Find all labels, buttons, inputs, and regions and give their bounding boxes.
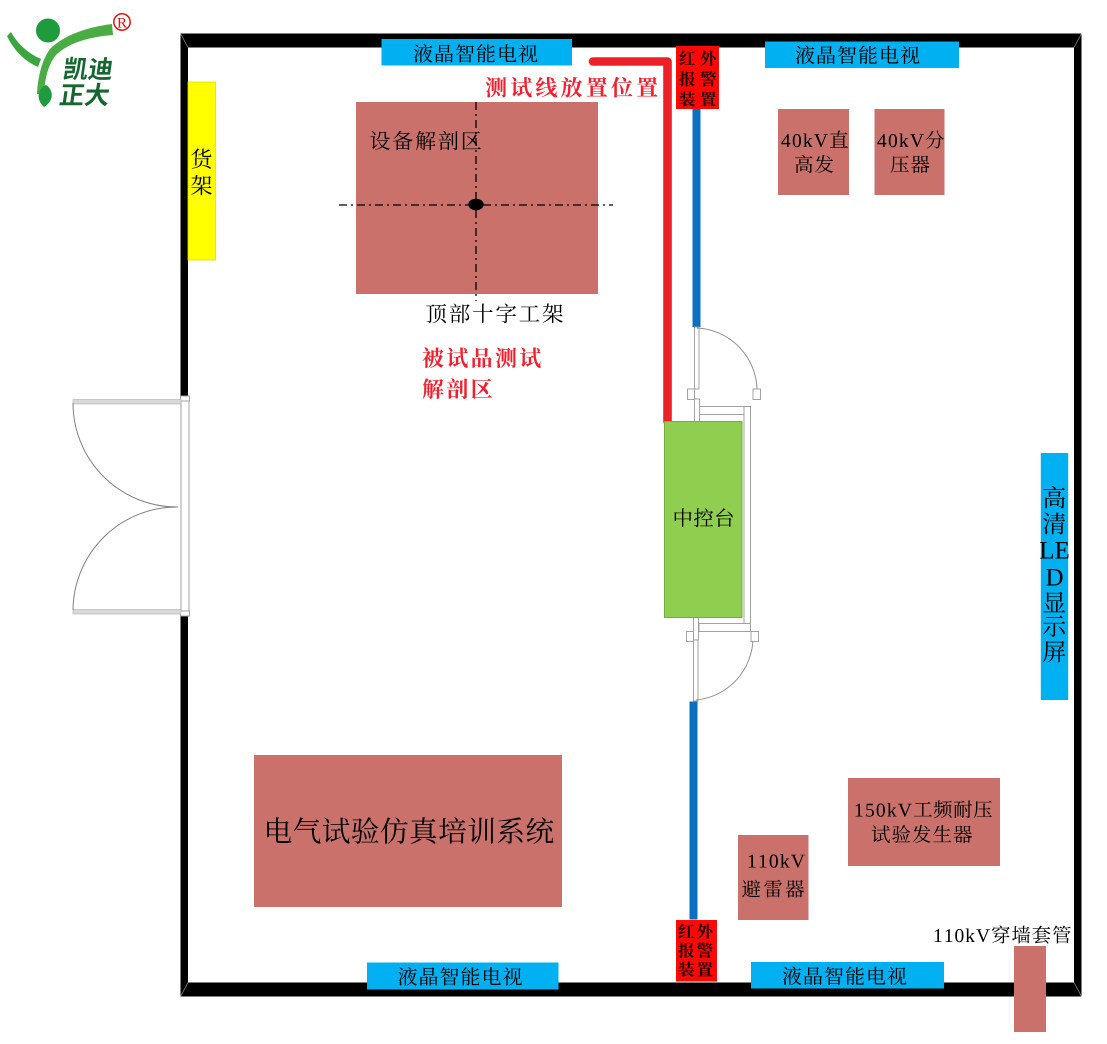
svg-text:LE: LE [1039, 538, 1070, 565]
svg-text:D: D [1045, 565, 1063, 592]
svg-text:R: R [117, 16, 127, 32]
